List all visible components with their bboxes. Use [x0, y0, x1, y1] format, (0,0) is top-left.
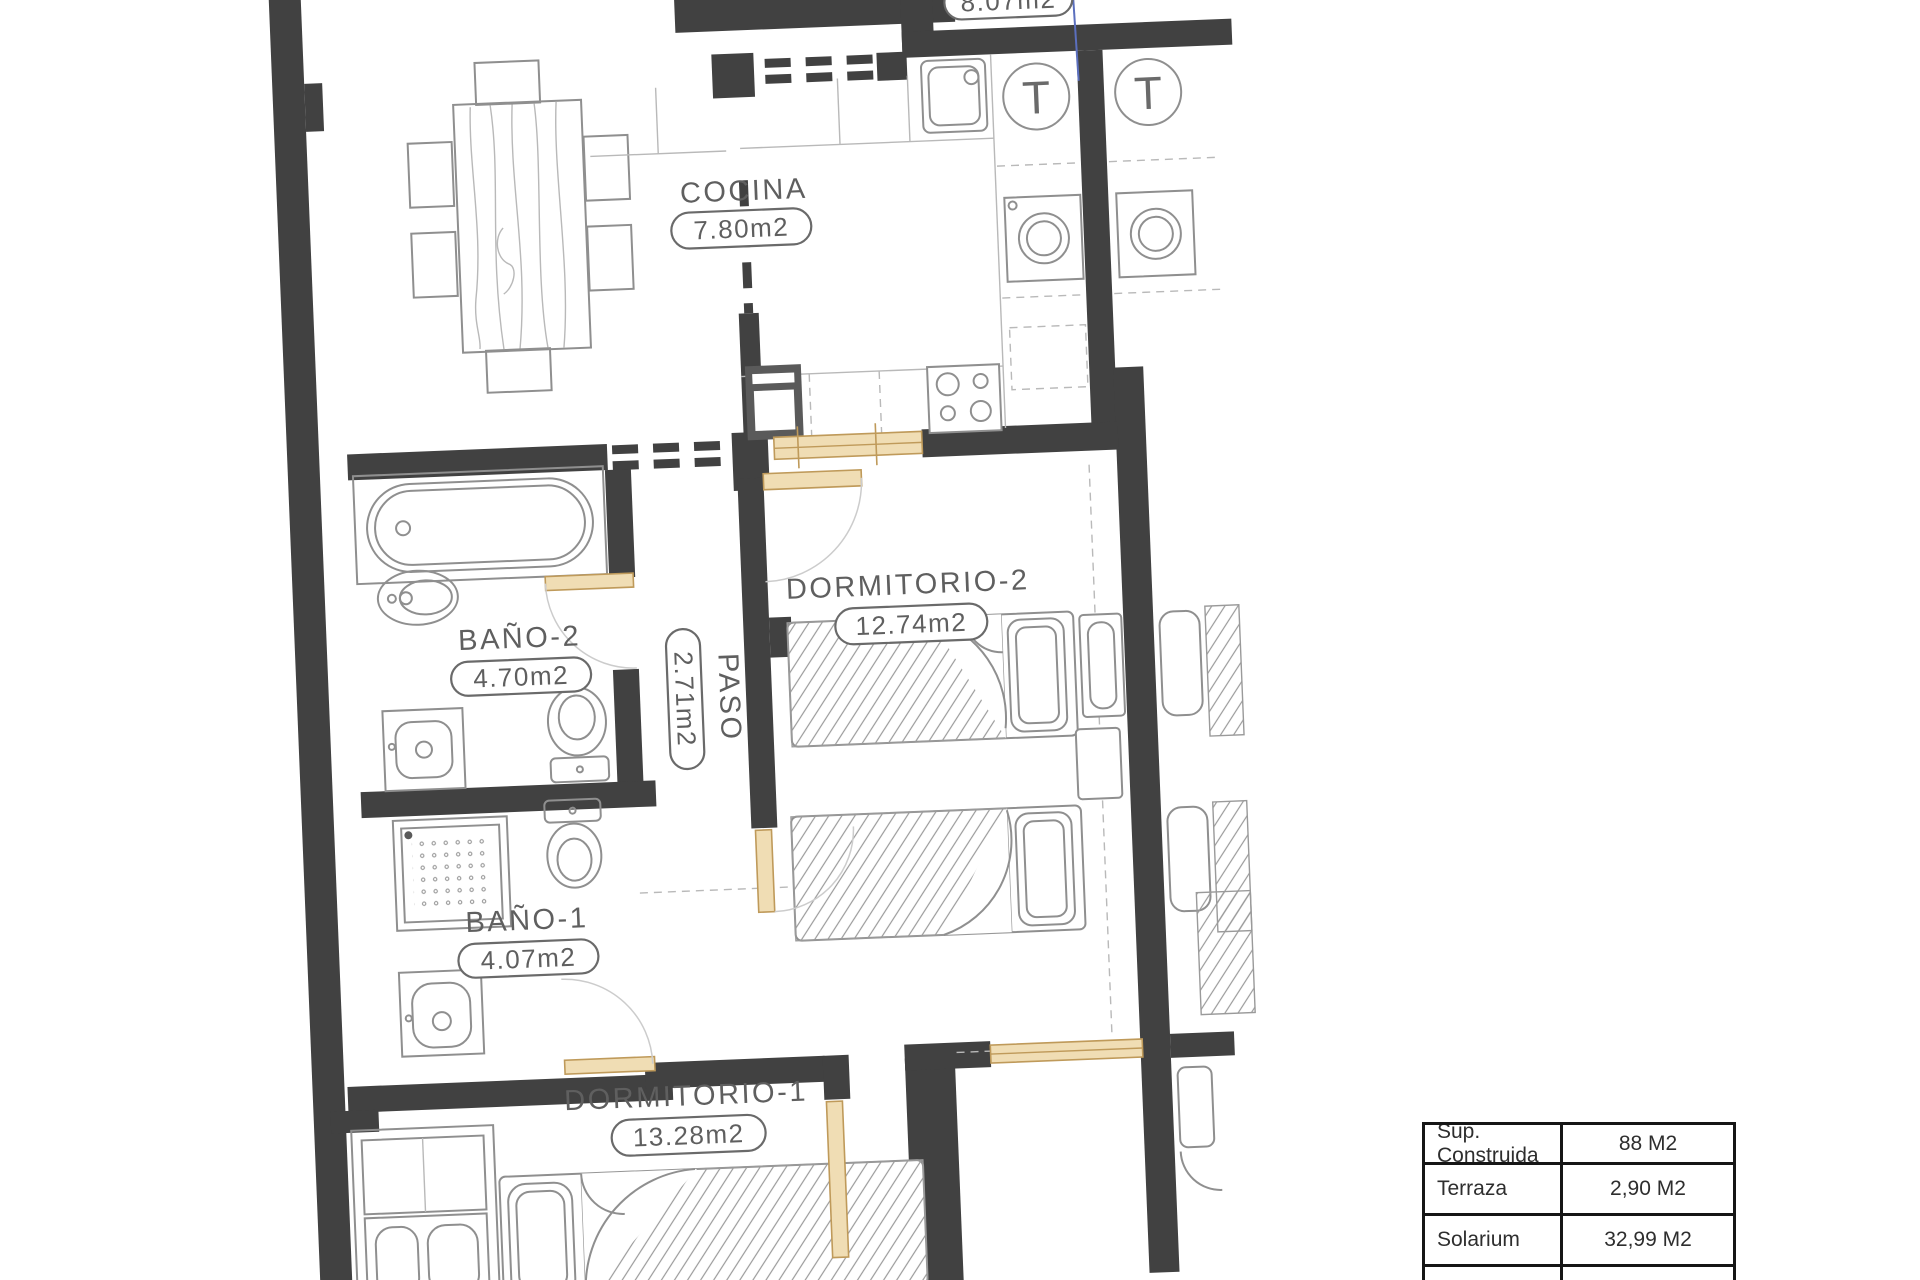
washbasin — [382, 708, 465, 791]
bedroom-2 — [739, 414, 1143, 1073]
bidet — [377, 569, 459, 626]
chair — [474, 60, 540, 105]
room-label-bano1: BAÑO-1 — [465, 900, 589, 939]
table-row-value — [1563, 1267, 1733, 1280]
toilet — [547, 686, 610, 782]
table-row-value: 32,99 M2 — [1563, 1216, 1733, 1264]
table-row-label: Sup. Construida — [1425, 1125, 1563, 1162]
table-row-value: 2,90 M2 — [1563, 1165, 1733, 1213]
t-icon-label: T — [1133, 66, 1163, 119]
neighbor-unit — [1159, 605, 1262, 1192]
area-label-dormitorio2: 12.74m2 — [855, 607, 968, 641]
hob — [927, 364, 1002, 433]
area-label-bano1: 4.07m2 — [480, 942, 577, 976]
room-label-dormitorio2: DORMITORIO-2 — [785, 564, 1030, 606]
room-label-paso: PASO — [711, 652, 747, 742]
wardrobe — [351, 1125, 500, 1280]
bathroom-1 — [392, 797, 655, 1081]
room-label-bano2: BAÑO-2 — [457, 618, 581, 657]
area-label-cocina: 7.80m2 — [693, 212, 790, 246]
sink-cabinet — [745, 364, 804, 440]
table-row-partial — [1425, 1267, 1733, 1280]
chair — [587, 225, 634, 291]
nightstand — [1159, 610, 1203, 716]
nightstand — [1079, 614, 1125, 718]
chair — [583, 135, 630, 201]
chair — [411, 232, 458, 298]
t-icon-label: T — [1021, 71, 1051, 124]
window — [990, 1039, 1143, 1063]
bed-partial — [1196, 891, 1255, 1015]
chair — [486, 348, 552, 393]
bed-single — [791, 805, 1086, 941]
bed-double — [499, 1160, 928, 1280]
table-row: Sup. Construida 88 M2 — [1425, 1125, 1733, 1165]
area-label-bano2: 4.70m2 — [473, 660, 570, 694]
toilet — [544, 799, 603, 889]
table-row: Terraza 2,90 M2 — [1425, 1165, 1733, 1216]
door-bedroom-2 — [761, 470, 865, 582]
floor-plan-drawing: T T — [0, 0, 1920, 1280]
room-label-cocina: COCINA — [679, 173, 808, 210]
table-row-value: 88 M2 — [1563, 1125, 1733, 1162]
washbasin — [399, 969, 484, 1056]
kitchen — [729, 54, 1006, 440]
chair — [408, 142, 455, 208]
table-row-label — [1425, 1267, 1563, 1280]
washing-machine — [1004, 195, 1083, 282]
table-row: Solarium 32,99 M2 — [1425, 1216, 1733, 1267]
door-bathroom-1 — [561, 976, 655, 1075]
table-row-label: Terraza — [1425, 1165, 1563, 1213]
nightstand — [1076, 728, 1123, 800]
area-label-dormitorio1: 13.28m2 — [632, 1118, 745, 1152]
area-summary-table: Sup. Construida 88 M2 Terraza 2,90 M2 So… — [1422, 1122, 1736, 1280]
room-label-paso-group: PASO 2.71m2 — [665, 627, 748, 770]
kitchen-sink — [921, 59, 988, 134]
floor-plan-page: T T — [0, 0, 1920, 1280]
washing-machine — [1116, 190, 1195, 277]
bathtub — [353, 466, 607, 584]
table-row-label: Solarium — [1425, 1216, 1563, 1264]
area-label-paso: 2.71m2 — [668, 651, 702, 748]
